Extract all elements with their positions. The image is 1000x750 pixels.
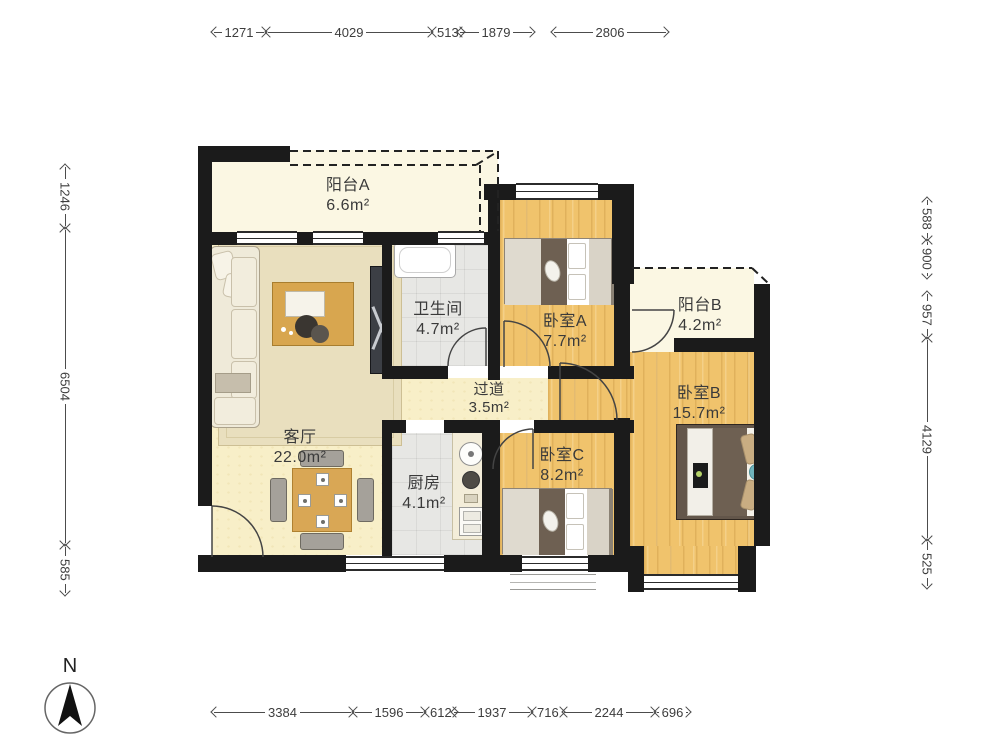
dim-left-1: 1246 (58, 165, 72, 228)
room-name: 卧室A (543, 312, 587, 332)
room-label-bedroom-a: 卧室A 7.7m² (543, 312, 587, 352)
balcony-dashed-boundary (290, 151, 768, 283)
room-label-bedroom-c: 卧室C 8.2m² (539, 446, 584, 486)
dim-bottom-5: 716 (532, 705, 563, 719)
door-swing-arcs (0, 0, 1000, 750)
room-name: 厨房 (402, 474, 445, 494)
room-label-hallway: 过道 3.5m² (469, 381, 510, 417)
room-area: 4.7m² (413, 320, 463, 340)
dim-right-5: 525 (920, 540, 934, 588)
room-name: 卫生间 (413, 300, 463, 320)
room-area: 22.0m² (274, 448, 327, 468)
room-name: 阳台B (678, 296, 722, 316)
room-area: 15.7m² (673, 404, 726, 424)
dim-bottom-4: 1937 (452, 705, 532, 719)
dim-left-2: 6504 (58, 228, 72, 545)
dim-right-3: 957 (920, 292, 934, 338)
room-area: 7.7m² (543, 332, 587, 352)
dim-bottom-7: 696 (655, 705, 690, 719)
dim-top-4: 1879 (458, 25, 534, 39)
room-label-kitchen: 厨房 4.1m² (402, 474, 445, 514)
room-name: 过道 (469, 381, 510, 399)
dim-right-1: 588 (920, 198, 934, 240)
room-name: 卧室B (673, 384, 726, 404)
room-area: 3.5m² (469, 399, 510, 417)
room-area: 6.6m² (326, 196, 370, 216)
dim-bottom-2: 1596 (353, 705, 425, 719)
room-label-balcony-b: 阳台B 4.2m² (678, 296, 722, 336)
dim-top-5: 2806 (552, 25, 668, 39)
north-compass: N (42, 655, 98, 741)
room-label-bedroom-b: 卧室B 15.7m² (673, 384, 726, 424)
floor-plan-canvas: 阳台A 6.6m² 客厅 22.0m² 卫生间 4.7m² 卧室A 7.7m² … (0, 0, 1000, 750)
room-name: 卧室C (539, 446, 584, 466)
room-label-living: 客厅 22.0m² (274, 428, 327, 468)
dim-right-4: 4129 (920, 338, 934, 540)
room-area: 4.2m² (678, 316, 722, 336)
dim-left-3: 585 (58, 545, 72, 595)
north-arrow-icon (42, 674, 98, 736)
dim-bottom-1: 3384 (212, 705, 353, 719)
dim-top-3: 513 (432, 25, 458, 39)
room-name: 阳台A (326, 176, 370, 196)
room-label-balcony-a: 阳台A 6.6m² (326, 176, 370, 216)
room-area: 4.1m² (402, 494, 445, 514)
room-name: 客厅 (274, 428, 327, 448)
dim-top-2: 4029 (266, 25, 432, 39)
dim-right-2: 900 (920, 240, 934, 278)
room-area: 8.2m² (539, 466, 584, 486)
dim-bottom-3: 612 (425, 705, 452, 719)
room-label-bathroom: 卫生间 4.7m² (413, 300, 463, 340)
dim-top-1: 1271 (212, 25, 266, 39)
dim-bottom-6: 2244 (563, 705, 655, 719)
